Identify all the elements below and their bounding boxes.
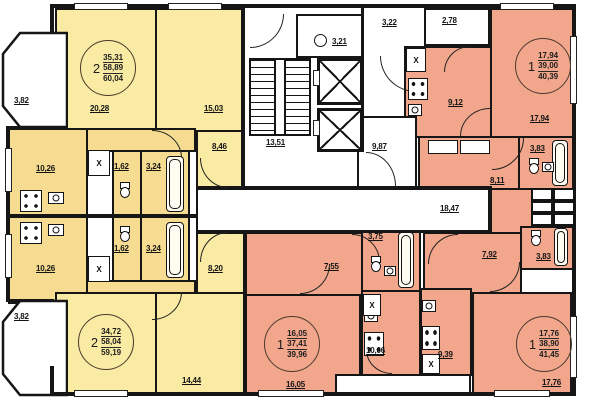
stove-icon: [408, 78, 428, 100]
elevator-door-1: [313, 70, 320, 86]
area-label-lift-hall: 3,22: [382, 18, 397, 27]
apartment-living-area: 35,31: [103, 53, 123, 64]
stove-icon: [422, 326, 440, 350]
area-label-chute-room: 3,21: [332, 37, 347, 46]
sink-icon: [542, 162, 554, 172]
area-label-hall: 7,55: [324, 262, 339, 271]
area-label-bath: 3,24: [146, 162, 161, 171]
area-label-hall: 7,92: [482, 250, 497, 259]
area-label-stairs: 13,51: [266, 138, 285, 147]
window: [570, 36, 577, 104]
wall: [6, 126, 54, 129]
apartment-total-area: 59,19: [101, 348, 121, 358]
area-label-kitchen: 9,39: [438, 350, 453, 359]
apartment-living-area: 34,72: [101, 327, 121, 338]
apartment-room-count: 1: [277, 337, 284, 352]
area-label-room: 14,44: [182, 376, 201, 385]
area-label-balcony: 3,82: [14, 96, 29, 105]
apartment-room-count: 1: [528, 59, 535, 74]
area-label-kitchen: 10,26: [36, 164, 55, 173]
bathtub-icon: [166, 156, 184, 212]
apartment-stamp-1room-bottom-mid[interactable]: 1 16,05 37,41 39,96: [264, 316, 320, 372]
apartment-total-area: 39,96: [287, 350, 307, 360]
apartment-living-area: 17,76: [539, 329, 559, 340]
staircase-icon: [249, 58, 311, 136]
vent-x: X: [369, 301, 374, 310]
toilet-icon: [370, 256, 381, 272]
balcony-2-78: [424, 8, 490, 46]
area-label-hall: 8,20: [208, 264, 223, 273]
vent-shaft-icon: X: [88, 150, 110, 176]
area-label-hall: 8,11: [490, 176, 504, 185]
floor-plan: X X X X X: [0, 0, 600, 400]
area-label-bath: 3,24: [146, 244, 161, 253]
area-label-kitchen: 10,26: [36, 264, 55, 273]
room-living-15-03: [155, 8, 245, 132]
window: [74, 3, 128, 10]
area-label-room: 17,76: [542, 378, 561, 387]
area-label-corridor: 18,47: [440, 204, 459, 213]
apartment-stamp-2room-bottom-left[interactable]: 2 34,72 58,04 59,19: [78, 314, 134, 370]
bay-balcony-top-left: [0, 30, 68, 130]
area-label-wc: 1,62: [114, 162, 129, 171]
apartment-area: 58,89: [103, 63, 123, 74]
vent-shaft-grid: [531, 188, 575, 226]
wardrobe-icon: [428, 140, 458, 154]
apartment-total-area: 60,04: [103, 74, 123, 84]
wall: [6, 299, 54, 302]
wall: [196, 230, 490, 233]
garbage-chute-icon: [314, 34, 327, 47]
area-label-wc: 1,62: [114, 244, 129, 253]
apartment-stamp-1room-top-right[interactable]: 1 17,94 39,00 40,39: [515, 38, 571, 94]
stove-icon: [20, 222, 42, 244]
window: [5, 148, 12, 192]
elevator-door-2: [313, 120, 320, 136]
elevator-icon-2: [317, 108, 363, 152]
wall: [6, 214, 196, 218]
area-label-balcony: 3,82: [14, 312, 29, 321]
window: [500, 3, 554, 10]
sink-icon: [384, 266, 396, 276]
apartment-total-area: 41,45: [539, 350, 559, 360]
toilet-icon: [528, 158, 539, 174]
area-label-room: 20,28: [90, 104, 109, 113]
wall: [50, 366, 54, 396]
area-label-bath: 3,83: [530, 144, 545, 153]
balcony-bottom: [335, 374, 471, 394]
elevator-icon-1: [317, 58, 363, 105]
apartment-room-count: 2: [91, 335, 98, 350]
toilet-icon: [119, 182, 130, 198]
bay-balcony-bottom-left: [0, 298, 68, 398]
toilet-icon: [530, 230, 541, 246]
area-label-hall: 8,46: [212, 142, 227, 151]
area-label-kitchen: 9,12: [448, 98, 463, 107]
apartment-living-area: 17,94: [538, 51, 558, 62]
toilet-icon: [119, 226, 130, 242]
vent-shaft-icon: X: [88, 256, 110, 282]
area-label-balcony: 2,78: [442, 16, 457, 25]
apartment-room-count: 2: [93, 61, 100, 76]
apartment-stamp-1room-bottom-right[interactable]: 1 17,76 38,90 41,45: [516, 316, 572, 372]
bathtub-icon: [166, 222, 184, 278]
vent-x: X: [96, 265, 101, 274]
wall: [50, 4, 54, 34]
window: [74, 390, 128, 397]
area-label-bath: 3,75: [368, 232, 383, 241]
apartment-area: 38,90: [539, 339, 559, 350]
window: [258, 390, 324, 397]
apartment-living-area: 16,05: [287, 329, 307, 340]
bathtub-icon: [554, 228, 568, 266]
sink-icon: [422, 300, 436, 312]
sink-icon: [48, 192, 64, 204]
chute-room-3-21: [296, 14, 364, 58]
area-label-room: 17,94: [530, 114, 549, 123]
sink-icon: [48, 224, 64, 236]
apartment-total-area: 40,39: [538, 72, 558, 82]
apartment-area: 37,41: [287, 339, 307, 350]
window: [5, 234, 12, 278]
apartment-room-count: 1: [529, 337, 536, 352]
apartment-stamp-2room-top-left[interactable]: 2 35,31 58,89 60,04: [80, 40, 136, 96]
area-label-bath: 3,83: [536, 252, 551, 261]
bathtub-icon: [398, 232, 414, 288]
apartment-area: 39,00: [538, 61, 558, 72]
area-label-lobby: 9,87: [372, 142, 387, 151]
vent-shaft-icon: X: [406, 48, 426, 72]
vent-x: X: [96, 159, 101, 168]
stove-icon: [20, 190, 42, 212]
sink-icon: [408, 104, 422, 116]
vent-x: X: [413, 56, 418, 65]
area-label-room: 15,03: [204, 104, 223, 113]
vent-shaft-icon: X: [363, 294, 381, 316]
wall: [50, 4, 576, 8]
wall: [241, 6, 245, 188]
window: [494, 390, 550, 397]
area-label-room: 16,05: [286, 380, 305, 389]
vent-x: X: [428, 360, 433, 369]
wall: [196, 186, 490, 189]
area-label-kitchen: 10,06: [366, 346, 385, 355]
wall: [488, 186, 492, 234]
wardrobe-icon: [460, 140, 490, 154]
bathtub-icon: [552, 140, 568, 186]
apartment-area: 58,04: [101, 337, 121, 348]
window: [168, 3, 222, 10]
